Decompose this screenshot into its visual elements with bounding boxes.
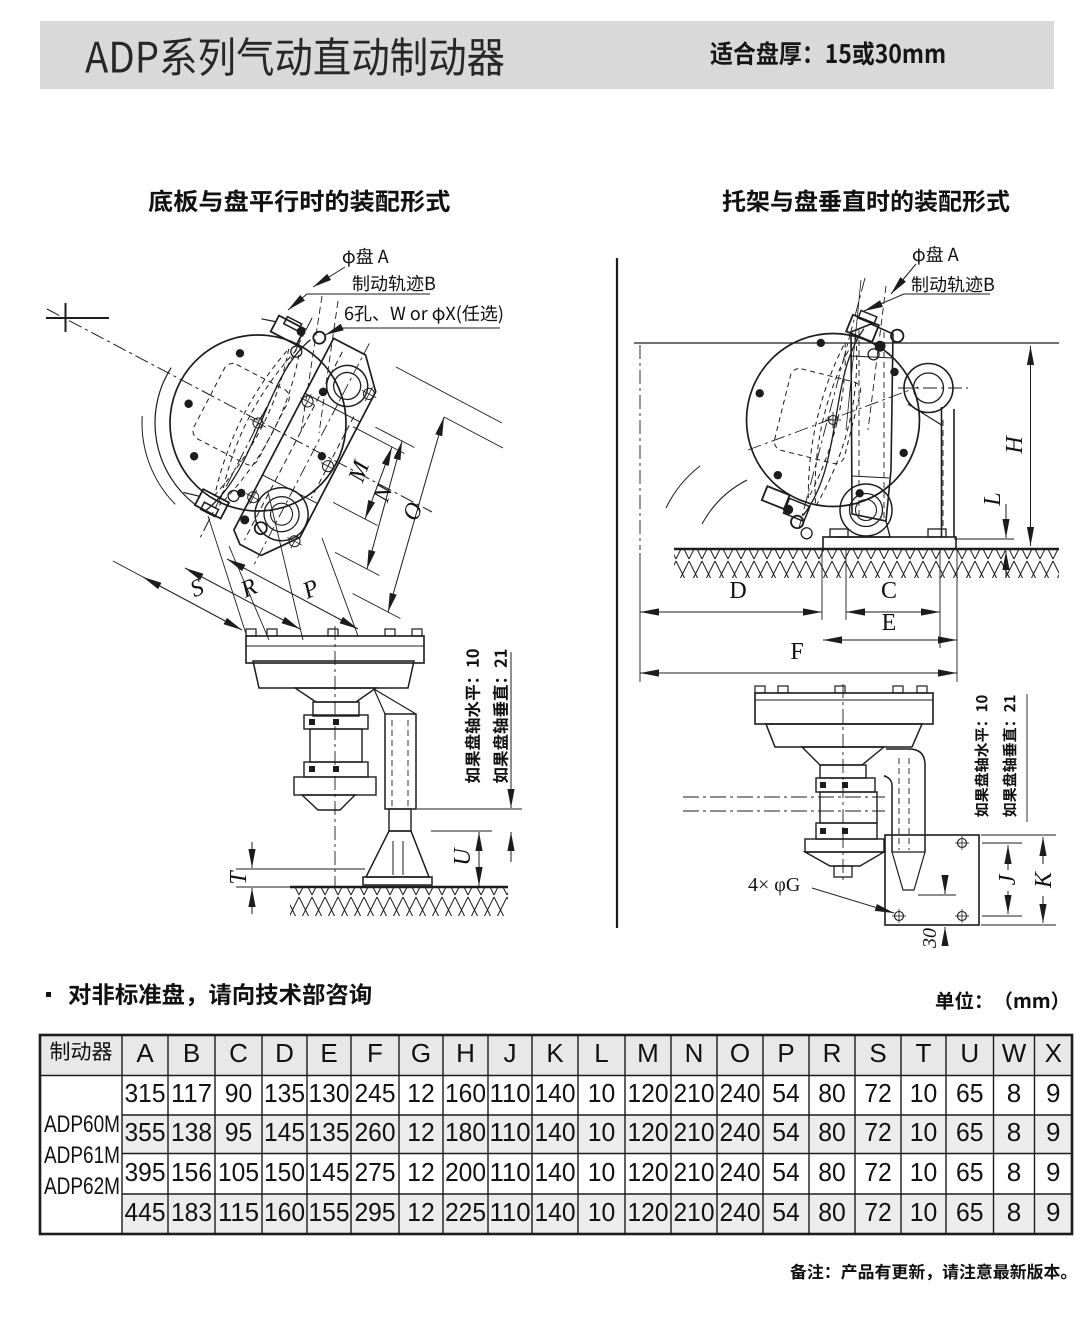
svg-text:260: 260 <box>355 1117 396 1147</box>
svg-text:N: N <box>368 480 399 507</box>
svg-text:200: 200 <box>445 1157 486 1187</box>
svg-text:8: 8 <box>1007 1197 1022 1227</box>
svg-text:130: 130 <box>309 1078 350 1108</box>
svg-text:T: T <box>916 1038 932 1068</box>
svg-text:355: 355 <box>125 1117 166 1147</box>
svg-text:A: A <box>136 1038 154 1068</box>
svg-text:156: 156 <box>171 1157 212 1187</box>
svg-text:M: M <box>637 1038 659 1068</box>
svg-text:30: 30 <box>919 928 941 949</box>
svg-text:210: 210 <box>674 1157 715 1187</box>
svg-text:54: 54 <box>772 1117 800 1147</box>
svg-text:117: 117 <box>171 1078 212 1108</box>
svg-text:80: 80 <box>818 1078 846 1108</box>
svg-text:4× φG: 4× φG <box>748 874 800 896</box>
svg-text:S: S <box>869 1038 886 1068</box>
svg-text:95: 95 <box>225 1117 253 1147</box>
svg-text:65: 65 <box>956 1157 984 1187</box>
svg-text:180: 180 <box>445 1117 486 1147</box>
svg-text:225: 225 <box>445 1197 486 1227</box>
svg-text:F: F <box>790 639 803 665</box>
svg-text:54: 54 <box>772 1078 800 1108</box>
svg-text:J: J <box>504 1038 517 1068</box>
svg-text:160: 160 <box>445 1078 486 1108</box>
svg-text:10: 10 <box>910 1117 938 1147</box>
svg-text:10: 10 <box>588 1117 616 1147</box>
svg-text:E: E <box>320 1038 337 1068</box>
svg-text:D: D <box>275 1038 294 1068</box>
svg-text:90: 90 <box>225 1078 253 1108</box>
svg-text:160: 160 <box>264 1197 305 1227</box>
svg-text:9: 9 <box>1046 1078 1061 1108</box>
svg-text:K: K <box>1031 870 1057 889</box>
svg-text:12: 12 <box>407 1157 435 1187</box>
svg-text:395: 395 <box>125 1157 166 1187</box>
svg-text:80: 80 <box>818 1117 846 1147</box>
svg-text:10: 10 <box>588 1157 616 1187</box>
svg-text:145: 145 <box>309 1157 350 1187</box>
svg-text:120: 120 <box>628 1157 669 1187</box>
svg-text:L: L <box>980 492 1006 506</box>
svg-text:140: 140 <box>535 1117 576 1147</box>
svg-text:10: 10 <box>588 1078 616 1108</box>
svg-text:72: 72 <box>864 1197 892 1227</box>
svg-text:9: 9 <box>1046 1197 1061 1227</box>
svg-text:U: U <box>960 1038 979 1068</box>
svg-text:65: 65 <box>956 1078 984 1108</box>
svg-text:8: 8 <box>1007 1157 1022 1187</box>
svg-text:12: 12 <box>407 1117 435 1147</box>
svg-text:315: 315 <box>125 1078 166 1108</box>
svg-text:240: 240 <box>720 1157 761 1187</box>
svg-text:150: 150 <box>264 1157 305 1187</box>
svg-text:240: 240 <box>720 1197 761 1227</box>
svg-text:D: D <box>729 578 746 604</box>
svg-text:135: 135 <box>264 1078 305 1108</box>
svg-text:140: 140 <box>535 1078 576 1108</box>
svg-text:110: 110 <box>490 1197 531 1227</box>
svg-text:U: U <box>450 847 476 866</box>
svg-text:H: H <box>456 1038 475 1068</box>
svg-text:12: 12 <box>407 1078 435 1108</box>
svg-text:C: C <box>229 1038 248 1068</box>
svg-text:L: L <box>594 1038 608 1068</box>
svg-text:C: C <box>881 578 897 604</box>
svg-text:ADP61M: ADP61M <box>44 1142 120 1169</box>
svg-text:54: 54 <box>772 1197 800 1227</box>
svg-text:10: 10 <box>910 1197 938 1227</box>
svg-text:145: 145 <box>264 1117 305 1147</box>
svg-text:72: 72 <box>864 1117 892 1147</box>
svg-text:65: 65 <box>956 1117 984 1147</box>
svg-text:135: 135 <box>309 1117 350 1147</box>
svg-text:65: 65 <box>956 1197 984 1227</box>
svg-text:N: N <box>685 1038 704 1068</box>
svg-text:72: 72 <box>864 1157 892 1187</box>
svg-text:12: 12 <box>407 1197 435 1227</box>
svg-text:8: 8 <box>1007 1117 1022 1147</box>
svg-text:H: H <box>1002 435 1028 455</box>
svg-text:P: P <box>298 575 323 605</box>
svg-text:R: R <box>823 1038 842 1068</box>
svg-text:G: G <box>411 1038 431 1068</box>
svg-text:ADP62M: ADP62M <box>44 1173 120 1200</box>
svg-text:445: 445 <box>125 1197 166 1227</box>
svg-text:155: 155 <box>309 1197 350 1227</box>
svg-text:10: 10 <box>910 1157 938 1187</box>
svg-text:X: X <box>1045 1038 1062 1068</box>
svg-text:54: 54 <box>772 1157 800 1187</box>
svg-text:8: 8 <box>1007 1078 1022 1108</box>
svg-text:140: 140 <box>535 1157 576 1187</box>
svg-text:10: 10 <box>588 1197 616 1227</box>
svg-text:72: 72 <box>864 1078 892 1108</box>
svg-text:110: 110 <box>490 1078 531 1108</box>
svg-text:138: 138 <box>171 1117 212 1147</box>
svg-text:210: 210 <box>674 1197 715 1227</box>
svg-text:210: 210 <box>674 1078 715 1108</box>
svg-text:240: 240 <box>720 1117 761 1147</box>
svg-text:K: K <box>546 1038 564 1068</box>
svg-text:E: E <box>882 610 897 636</box>
svg-text:115: 115 <box>218 1197 259 1227</box>
svg-text:O: O <box>398 499 428 524</box>
svg-text:120: 120 <box>628 1197 669 1227</box>
svg-text:105: 105 <box>218 1157 259 1187</box>
svg-text:295: 295 <box>355 1197 396 1227</box>
svg-text:80: 80 <box>818 1197 846 1227</box>
svg-text:245: 245 <box>355 1078 396 1108</box>
svg-text:F: F <box>367 1038 383 1068</box>
svg-text:10: 10 <box>910 1078 938 1108</box>
svg-text:120: 120 <box>628 1117 669 1147</box>
svg-text:120: 120 <box>628 1078 669 1108</box>
svg-text:210: 210 <box>674 1117 715 1147</box>
svg-text:O: O <box>730 1038 750 1068</box>
svg-text:110: 110 <box>490 1157 531 1187</box>
svg-text:R: R <box>236 574 261 604</box>
svg-text:T: T <box>226 870 252 885</box>
svg-text:M: M <box>343 456 375 487</box>
svg-text:ADP60M: ADP60M <box>44 1111 120 1138</box>
svg-text:80: 80 <box>818 1157 846 1187</box>
svg-text:140: 140 <box>535 1197 576 1227</box>
svg-text:9: 9 <box>1046 1117 1061 1147</box>
svg-text:B: B <box>183 1038 200 1068</box>
svg-text:275: 275 <box>355 1157 396 1187</box>
svg-text:9: 9 <box>1046 1157 1061 1187</box>
svg-text:240: 240 <box>720 1078 761 1108</box>
svg-text:W: W <box>1002 1038 1027 1068</box>
svg-text:J: J <box>995 873 1021 885</box>
svg-text:110: 110 <box>490 1117 531 1147</box>
svg-text:183: 183 <box>171 1197 212 1227</box>
svg-text:P: P <box>777 1038 794 1068</box>
